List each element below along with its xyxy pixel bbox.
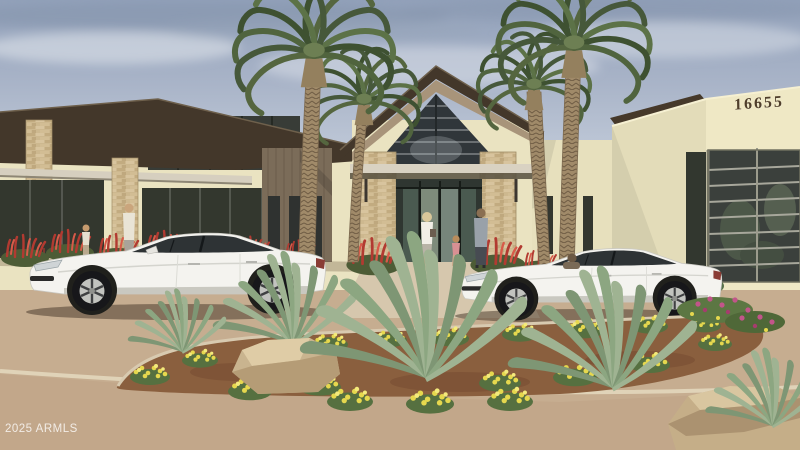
rendered-scene bbox=[0, 0, 800, 450]
armls-watermark: 2025 ARMLS bbox=[5, 423, 78, 435]
corner-window-side bbox=[686, 152, 706, 280]
slat-panel-left bbox=[262, 148, 332, 262]
person-child-left bbox=[82, 225, 90, 258]
narrow-window bbox=[583, 196, 593, 254]
entry-canopy bbox=[350, 164, 532, 173]
listing-photo: 2025 ARMLS 16655 bbox=[0, 0, 800, 450]
entry-doors bbox=[396, 179, 482, 271]
